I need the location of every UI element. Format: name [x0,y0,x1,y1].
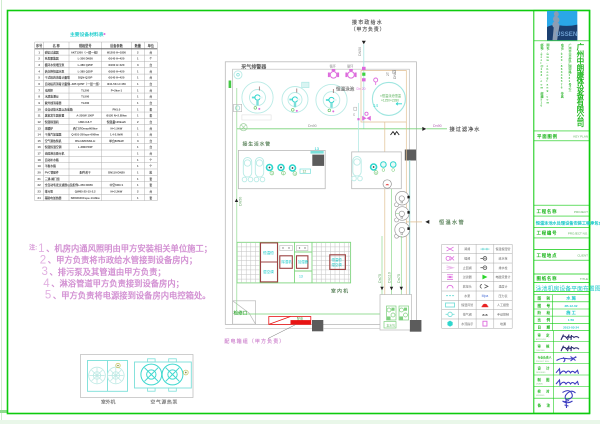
svg-text:循环水泵增压泵: 循环水泵增压泵 [44,63,65,67]
svg-text:、甲方负责将市政给水管接到设备房内；: 、甲方负责将市政给水管接到设备房内； [48,255,197,266]
svg-text:恒温泳池: 恒温泳池 [336,86,355,93]
svg-text:给水栓: 给水栓 [498,256,507,261]
svg-text:P=2kw-1: P=2kw-1 [111,88,123,92]
svg-text:审 定: 审 定 [538,333,552,338]
svg-text:12: 12 [303,170,307,174]
svg-text:N=2.2kW: N=2.2kW [111,190,123,194]
svg-text:L-380/720P: L-380/720P [78,145,93,149]
svg-text:接生活水管: 接生活水管 [243,141,272,148]
svg-text:加湿器: 加湿器 [298,259,309,264]
svg-text:压力表: 压力表 [498,293,507,298]
svg-text:套: 套 [148,196,152,200]
svg-text:24: 24 [38,196,42,200]
svg-text:采暖炉: 采暖炉 [44,126,54,130]
svg-text:恒温水管: 恒温水管 [439,218,465,226]
svg-text:注:: 注: [29,244,37,252]
svg-text:闸阀: 闸阀 [464,246,470,251]
svg-text:Φ140 H=420: Φ140 H=420 [108,76,125,80]
svg-text:HSD-0.8-T: HSD-0.8-T [79,120,93,124]
svg-text:辅助电加热器: 辅助电加热器 [45,196,62,200]
svg-text:APPROVED: APPROVED [536,338,547,341]
svg-text:CLIENT: CLIENT [577,254,588,258]
svg-text:恒温恒湿管: 恒温恒湿管 [495,246,510,251]
svg-text:TL200: TL200 [81,88,90,92]
svg-text:N=1.5kW: N=1.5kW [111,126,123,130]
svg-text:NFD2040Cspe-14.8kw: NFD2040Cspe-14.8kw [71,196,101,200]
svg-text:水流指示: 水流指示 [461,321,473,326]
svg-text:2T: 2T [386,72,390,76]
svg-text:日 期: 日 期 [538,324,553,329]
svg-text:Dn90: Dn90 [308,124,317,128]
svg-text:自动补水箱: 自动补水箱 [45,158,59,162]
svg-text:阶 段: 阶 段 [538,310,553,315]
svg-text:DN50: DN50 [239,197,243,206]
svg-text:恒温泳池水处理设备安装工程承包合同: 恒温泳池水处理设备安装工程承包合同 [536,219,600,226]
svg-text:（甲方负责）: （甲方负责） [351,26,386,33]
svg-text:配件若干: 配件若干 [80,171,91,175]
svg-text:止回阀: 止回阀 [463,265,472,270]
svg-text:KEY PLAN: KEY PLAN [573,135,588,139]
svg-text:过滤器: 过滤器 [463,274,472,279]
svg-text:台: 台 [149,133,152,137]
svg-text:4: 4 [43,278,50,290]
svg-text:校 对: 校 对 [538,388,552,393]
svg-text:池底清洁吸污机: 池底清洁吸污机 [45,152,65,156]
svg-text:DQN-Q25P: DQN-Q25P [78,76,92,80]
svg-text:PROJECT ENG.: PROJECT ENG. [536,361,550,363]
svg-text:×1250×2280: ×1250×2280 [381,99,399,103]
svg-text:台: 台 [149,88,152,92]
svg-text:Dn75: Dn75 [397,274,401,283]
svg-text:QW65-25-15-2.2: QW65-25-15-2.2 [75,190,96,194]
svg-text:USSEN: USSEN [556,31,578,38]
svg-text:Q-851-250spe-600kw: Q-851-250spe-600kw [71,133,99,137]
svg-text:臭氧发生器装置: 臭氧发生器装置 [44,114,65,118]
svg-text:台: 台 [149,101,152,105]
svg-text:19: 19 [38,164,42,168]
svg-text:序号: 序号 [35,43,43,48]
svg-text:22: 22 [38,183,42,187]
svg-text:泳池机房设备平面布置图二: 泳池机房设备平面布置图二 [536,285,600,293]
svg-text:配电: 配电 [297,316,304,321]
svg-text:个: 个 [148,164,152,168]
svg-text:DESIGNED: DESIGNED [536,372,546,374]
svg-text:Φ41.5K H=450: Φ41.5K H=450 [107,82,126,86]
svg-text:接过滤净水: 接过滤净水 [450,125,481,133]
svg-text:TITLE: TITLE [580,277,588,281]
svg-text:温度计: 温度计 [498,284,507,289]
svg-text:水质监测仪: 水质监测仪 [44,95,59,99]
svg-text:15: 15 [38,139,42,143]
svg-text:设 计: 设 计 [538,366,552,371]
svg-text:2B-12-02: 2B-12-02 [565,304,578,308]
svg-text:西门子Dmax600kw: 西门子Dmax600kw [73,126,98,130]
svg-text:比 例: 比 例 [538,317,553,322]
svg-text:恒湿风管: 恒湿风管 [461,302,473,307]
svg-text:1:50: 1:50 [568,318,574,322]
svg-text:专业负责人: 专业负责人 [538,355,552,359]
svg-text:施 工: 施 工 [566,309,576,316]
svg-text:L-350 DN50: L-350 DN50 [78,57,94,61]
svg-text:、机房内通风照明由甲方安装相关单位施工；: 、机房内通风照明由甲方安装相关单位施工； [46,244,212,255]
svg-text:恒温恒湿空调: 恒温恒湿空调 [45,145,62,149]
svg-text:PROJECT NO.: PROJECT NO. [568,231,588,235]
svg-text:空气源热泵: 空气源热泵 [151,399,179,406]
svg-text:图 号: 图 号 [538,303,553,308]
svg-text:RSJ-820/SN1-H: RSJ-820/SN1-H [75,139,95,143]
svg-text:制 图: 制 图 [538,377,552,382]
svg-text:m: m [547,100,550,104]
svg-text:室外机: 室外机 [101,399,116,406]
svg-text:、排污泵及其管道由甲方负责；: 、排污泵及其管道由甲方负责； [50,267,166,278]
svg-text:砂缸过滤器: 砂缸过滤器 [44,50,59,54]
svg-text:Φ160 H=420: Φ160 H=420 [108,69,125,73]
svg-text:水 施: 水 施 [566,295,576,302]
svg-text:室内机: 室内机 [331,288,349,295]
svg-text:集水坑: 集水坑 [387,323,396,327]
svg-text:3: 3 [42,266,48,278]
svg-text:×恒温泳池恒温: ×恒温泳池恒温 [380,93,402,98]
svg-text:1: 1 [38,243,44,255]
svg-text:台: 台 [149,152,152,156]
svg-text:中空600×1: 中空600×1 [110,183,124,187]
svg-text:12: 12 [38,120,42,124]
svg-text:干蒸汽加湿器: 干蒸汽加湿器 [45,133,62,137]
svg-text:恒温量120kw/h: 恒温量120kw/h [107,120,127,124]
svg-text:人工报警: 人工报警 [497,302,509,307]
svg-text:Φ160 H=420: Φ160 H=420 [108,63,125,67]
svg-text:Φ140 H=420: Φ140 H=420 [108,57,125,61]
svg-text:AKT1200（一层一组）: AKT1200（一层一组） [71,50,100,54]
svg-text:单台835kW: 单台835kW [109,139,124,143]
svg-text:、甲方负责将电源接到设备房内电控箱处。: 、甲方负责将电源接到设备房内电控箱处。 [53,290,211,300]
svg-text:DN110-DN20: DN110-DN20 [108,171,125,175]
svg-text:湿空调: 湿空调 [332,262,343,267]
svg-text:空气源热泵机: 空气源热泵机 [45,139,62,143]
svg-text:台: 台 [149,145,152,149]
svg-text:个: 个 [148,158,152,162]
svg-text:排水栓: 排水栓 [498,265,507,270]
svg-text:排污泵: 排污泵 [45,190,54,194]
svg-text:11: 11 [38,114,41,118]
svg-text:PVC管配件: PVC管配件 [45,171,59,175]
svg-text:恒温除湿机: 恒温除湿机 [45,120,59,124]
svg-text:套: 套 [148,177,152,181]
svg-text:14: 14 [373,103,378,108]
svg-text:台: 台 [149,95,152,99]
svg-text:主要设备材料表: 主要设备材料表 [70,31,104,38]
svg-text:m: m [541,85,544,89]
svg-text:平面图例: 平面图例 [537,133,558,140]
svg-text:蝶阀: 蝶阀 [464,256,470,261]
svg-text:16: 16 [38,145,42,149]
svg-text:审 核: 审 核 [538,344,552,349]
svg-text:L-385 Q25P（一层一组）: L-385 Q25P（一层一组） [69,82,101,86]
svg-text:湿空调: 湿空调 [263,269,274,274]
svg-text:水泵: 水泵 [464,293,470,298]
svg-text:Dn75: Dn75 [378,274,382,283]
svg-text:23: 23 [38,190,42,194]
svg-text:13: 13 [299,275,303,279]
svg-text:20: 20 [38,171,42,175]
svg-text:检修口: 检修口 [234,310,248,317]
svg-text:恒温恒: 恒温恒 [263,250,274,255]
svg-text:备 注: 备 注 [537,403,553,408]
svg-text:套: 套 [148,114,152,118]
svg-text:图 别: 图 别 [538,296,553,301]
svg-text:台: 台 [149,69,152,73]
svg-text:2: 2 [40,255,46,267]
svg-text:台: 台 [149,120,152,124]
svg-text:VERIFIED: VERIFIED [536,395,545,397]
svg-text:14: 14 [38,133,42,137]
svg-text:台: 台 [149,126,152,130]
svg-text:L-385 Q25P: L-385 Q25P [78,69,93,73]
svg-text:L-380 Q25P: L-380 Q25P [78,63,93,67]
svg-text:图纸名称: 图纸名称 [537,275,558,282]
svg-text:三通-阀门组: 三通-阀门组 [45,177,60,181]
svg-text:PROJECT: PROJECT [574,210,588,214]
svg-text:工程编号: 工程编号 [537,230,558,237]
svg-text:Φ1200 H=1850: Φ1200 H=1850 [107,50,127,54]
svg-text:21: 21 [38,177,42,181]
svg-text:13: 13 [38,126,42,130]
svg-text:5: 5 [45,290,51,302]
svg-text:真: 真 [560,93,564,98]
svg-text:2013-03-24: 2013-03-24 [563,325,579,329]
svg-text:配电箱组（甲方负责）: 配电箱组（甲方负责） [224,338,285,345]
svg-text:接市政给水: 接市政给水 [351,19,383,26]
svg-text:台: 台 [149,190,152,194]
svg-text:全自动软水器以及盐箱: 全自动软水器以及盐箱 [44,107,73,111]
svg-text:台: 台 [149,139,152,143]
svg-text:工程地点: 工程地点 [537,252,558,259]
svg-text:全自动毛发过滤器以及配件: 全自动毛发过滤器以及配件 [44,183,79,187]
svg-text:地漏: 地漏 [500,321,506,326]
svg-text:设备参数: 设备参数 [110,43,124,48]
svg-text:13: 13 [315,146,320,151]
svg-text:司: 司 [577,119,585,128]
svg-text:规格型号: 规格型号 [79,43,93,48]
svg-text:、淋浴管道甲方负责接到设备房内；: 、淋浴管道甲方负责接到设备房内； [51,279,184,290]
svg-text:DRAWN: DRAWN [536,383,543,386]
svg-text:台: 台 [149,63,152,67]
svg-text:Dn90: Dn90 [433,124,442,128]
svg-text:平衡水箱: 平衡水箱 [45,164,56,168]
svg-text:单位: 单位 [148,43,155,48]
svg-text:L-350 DN50: L-350 DN50 [78,183,94,187]
svg-text:循环: 循环 [347,63,353,68]
svg-text:干式投药消毒计量泵: 干式投药消毒计量泵 [45,76,70,80]
svg-text:自动投药消毒计量泵: 自动投药消毒计量泵 [45,82,70,86]
svg-text:10: 10 [38,107,42,111]
svg-text:台: 台 [149,82,152,86]
svg-text:DN40: DN40 [393,70,397,79]
svg-text:手动控制: 手动控制 [497,311,509,316]
svg-text:电控柜: 电控柜 [45,88,54,92]
svg-text:DN50: DN50 [358,47,362,56]
svg-text:CHECKED: CHECKED [536,350,545,352]
svg-text:台: 台 [149,76,152,80]
svg-text:软接头: 软接头 [463,284,472,289]
svg-text:个: 个 [148,57,152,61]
svg-text:TL200: TL200 [81,101,90,105]
svg-text:排气阀: 排气阀 [463,311,472,316]
svg-text:17: 17 [38,152,42,156]
svg-text:热交换恒温水泵: 热交换恒温水泵 [44,69,65,73]
svg-text:工程名称: 工程名称 [537,208,558,215]
svg-text:Mpa: Mpa [482,294,489,298]
svg-text:Φ120 N=2.85kw: Φ120 N=2.85kw [106,114,127,118]
svg-text:名 称: 名 称 [53,43,61,48]
svg-text:套: 套 [148,183,152,187]
svg-text:三: 三 [569,87,572,92]
svg-text:TL500: TL500 [81,95,90,99]
svg-text:A-220W 150P: A-220W 150P [76,114,94,118]
svg-text:Dn110: Dn110 [387,272,391,283]
svg-text:恒温恒: 恒温恒 [332,257,343,262]
svg-text:数量: 数量 [134,43,142,48]
svg-text:除湿机: 除湿机 [282,259,293,264]
svg-text:紫外线消毒器: 紫外线消毒器 [45,101,62,105]
svg-text:循环: 循环 [330,63,336,68]
svg-text:批: 批 [149,171,152,175]
svg-text:电磁流量计: 电磁流量计 [495,274,510,279]
svg-text:18: 18 [38,158,42,162]
svg-text:套: 套 [148,107,152,111]
svg-text:毛发聚集器: 毛发聚集器 [45,57,59,61]
svg-text:采气排警器: 采气排警器 [240,64,267,71]
svg-text:PN1.0: PN1.0 [113,107,121,111]
svg-text:1.4-2.0kW: 1.4-2.0kW [110,133,123,137]
svg-text:台: 台 [149,50,152,54]
